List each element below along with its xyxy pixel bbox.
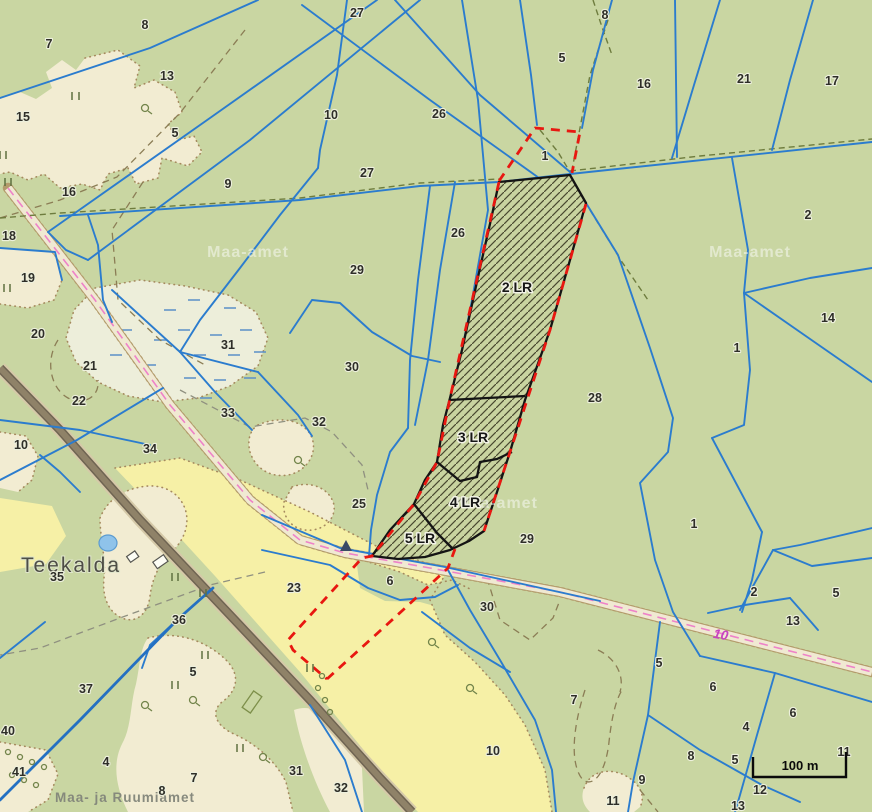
map-canvas[interactable]: Maa-ametMaa-ametMaa-ametMaa- ja Ruumiame… — [0, 0, 872, 812]
parcel-number-label: 30 — [345, 360, 359, 374]
parcel-number-label: 2 — [751, 585, 758, 599]
parcel-number-label: 20 — [31, 327, 45, 341]
parcel-number-label: 8 — [142, 18, 149, 32]
scale-bar-label: 100 m — [782, 758, 819, 773]
parcel-number-label: 27 — [350, 6, 364, 20]
parcel-number-label: 13 — [160, 69, 174, 83]
parcel-number-label: 34 — [143, 442, 157, 456]
parcel-number-label: 6 — [387, 574, 394, 588]
parcel-number-label: 13 — [731, 799, 745, 812]
parcel-number-label: 11 — [837, 745, 850, 759]
parcel-number-label: 6 — [710, 680, 717, 694]
parcel-number-label: 10 — [486, 744, 500, 758]
parcel-number-label: 11 — [606, 794, 619, 808]
parcel-number-label: 29 — [350, 263, 364, 277]
parcel-number-label: 36 — [172, 613, 186, 627]
parcel-number-label: 30 — [480, 600, 494, 614]
parcel-number-label: 5 — [833, 586, 840, 600]
parcel-number-label: 40 — [1, 724, 15, 738]
parcel-number-label: 28 — [588, 391, 602, 405]
parcel-number-label: 21 — [83, 359, 97, 373]
parcel-number-label: 5 — [190, 665, 197, 679]
parcel-number-label: 7 — [46, 37, 53, 51]
parcel-number-label: 27 — [360, 166, 374, 180]
place-parcel-number: 35 — [50, 570, 64, 584]
parcel-number-label: 5 — [172, 126, 179, 140]
watermark-text: Maa-amet — [709, 244, 791, 261]
target-parcel-label: 2 LR — [502, 279, 532, 295]
parcel-number-label: 8 — [159, 784, 166, 798]
watermark-text: Maa-amet — [207, 244, 289, 261]
parcel-number-label: 19 — [21, 271, 35, 285]
parcel-number-label: 14 — [821, 311, 835, 325]
parcel-number-label: 16 — [62, 185, 76, 199]
parcel-number-label: 32 — [312, 415, 326, 429]
parcel-number-label: 22 — [72, 394, 86, 408]
parcel-number-label: 5 — [559, 51, 566, 65]
parcel-number-label: 25 — [352, 497, 366, 511]
place-name-label: Teekalda — [21, 554, 121, 577]
parcel-number-label: 9 — [639, 773, 646, 787]
parcel-number-label: 37 — [79, 682, 93, 696]
parcel-number-label: 6 — [790, 706, 797, 720]
parcel-number-label: 41 — [12, 765, 26, 779]
pond — [99, 535, 117, 551]
parcel-number-label: 8 — [688, 749, 695, 763]
parcel-number-label: 1 — [691, 517, 698, 531]
target-parcel-label: 3 LR — [458, 429, 488, 445]
parcel-number-label: 26 — [432, 107, 446, 121]
parcel-number-label: 23 — [287, 581, 301, 595]
parcel-number-label: 12 — [753, 783, 767, 797]
parcel-number-label: 7 — [571, 693, 578, 707]
parcel-number-label: 18 — [2, 229, 16, 243]
parcel-number-label: 32 — [334, 781, 348, 795]
parcel-number-label: 9 — [225, 177, 232, 191]
parcel-number-label: 16 — [637, 77, 651, 91]
target-parcel-label: 4 LR — [450, 494, 480, 510]
target-parcel-label: 5 LR — [405, 530, 435, 546]
parcel-number-label: 31 — [221, 338, 235, 352]
road-number-label: 10 — [712, 626, 730, 643]
parcel-number-label: 1 — [542, 149, 549, 163]
parcel-number-label: 17 — [825, 74, 839, 88]
watermark-text: Maa- ja Ruumiamet — [55, 790, 195, 805]
parcel-number-label: 10 — [14, 438, 28, 452]
parcel-number-label: 5 — [732, 753, 739, 767]
parcel-number-label: 4 — [743, 720, 750, 734]
parcel-number-label: 21 — [737, 72, 751, 86]
parcel-number-label: 2 — [805, 208, 812, 222]
parcel-number-label: 26 — [451, 226, 465, 240]
parcel-number-label: 10 — [324, 108, 338, 122]
parcel-number-label: 4 — [103, 755, 110, 769]
parcel-number-label: 13 — [786, 614, 800, 628]
parcel-number-label: 8 — [602, 8, 609, 22]
parcel-number-label: 5 — [656, 656, 663, 670]
parcel-number-label: 31 — [289, 764, 303, 778]
parcel-number-label: 33 — [221, 406, 235, 420]
cadastral-map-viewport[interactable]: Maa-ametMaa-ametMaa-ametMaa- ja Ruumiame… — [0, 0, 872, 812]
parcel-number-label: 7 — [191, 771, 198, 785]
parcel-number-label: 1 — [734, 341, 741, 355]
parcel-number-label: 29 — [520, 532, 534, 546]
parcel-number-label: 15 — [16, 110, 30, 124]
